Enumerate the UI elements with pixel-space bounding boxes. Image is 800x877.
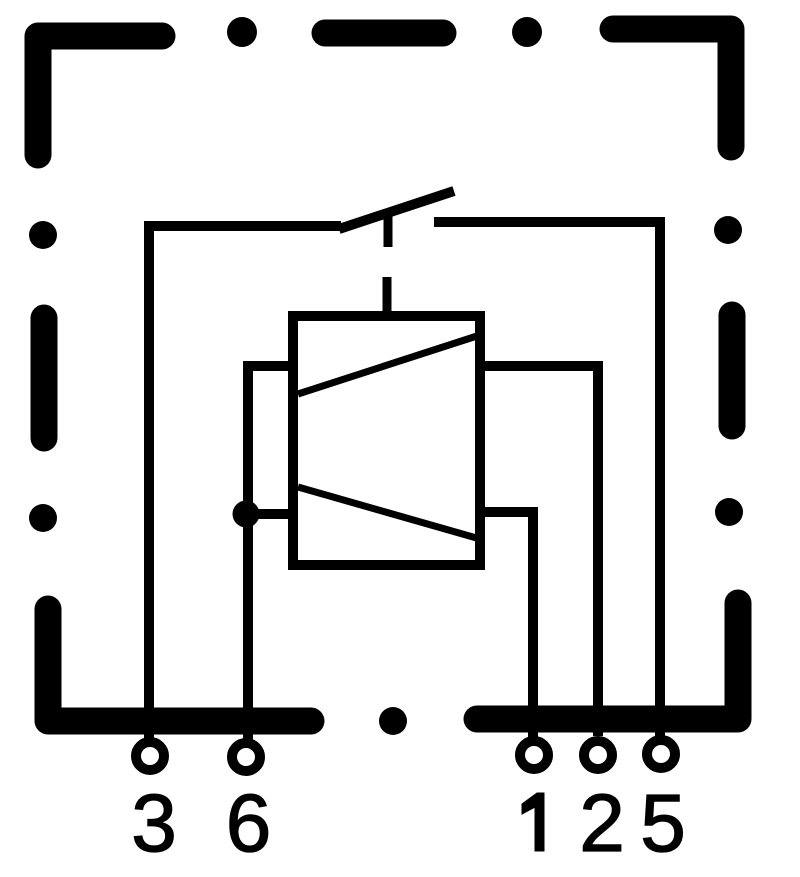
svg-text:6: 6 [226, 778, 272, 869]
svg-text:2: 2 [579, 778, 625, 869]
svg-text:3: 3 [131, 778, 177, 869]
svg-text:5: 5 [640, 778, 686, 869]
